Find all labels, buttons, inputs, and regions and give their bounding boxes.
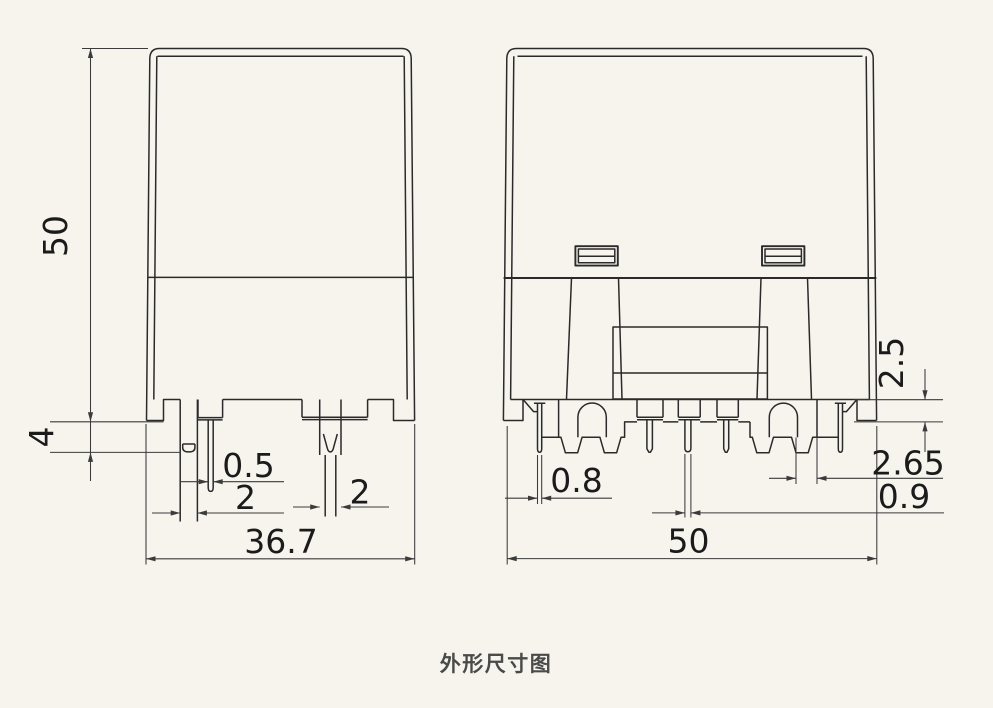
dim-width-label: 36.7 (244, 522, 317, 561)
dim-front-width-label: 50 (668, 522, 710, 561)
dim-base-height-label: 2.5 (872, 337, 911, 389)
dim-pin08-label: 0.8 (550, 461, 602, 500)
dim-center-pin-label: 0.9 (878, 477, 930, 516)
dim-standoff-label: 4 (22, 427, 61, 448)
drawing-canvas: 50 4 0.5 2 2 36.7 2.5 0.8 2.65 0.9 50 外形… (0, 0, 993, 708)
dim-left-pin-label: 2 (235, 478, 256, 517)
dim-right-pin-label: 2 (350, 473, 371, 512)
outline-dimension-drawing: 50 4 0.5 2 2 36.7 2.5 0.8 2.65 0.9 50 外形… (0, 0, 993, 708)
dim-height-label: 50 (36, 215, 75, 257)
drawing-caption: 外形尺寸图 (440, 652, 553, 676)
